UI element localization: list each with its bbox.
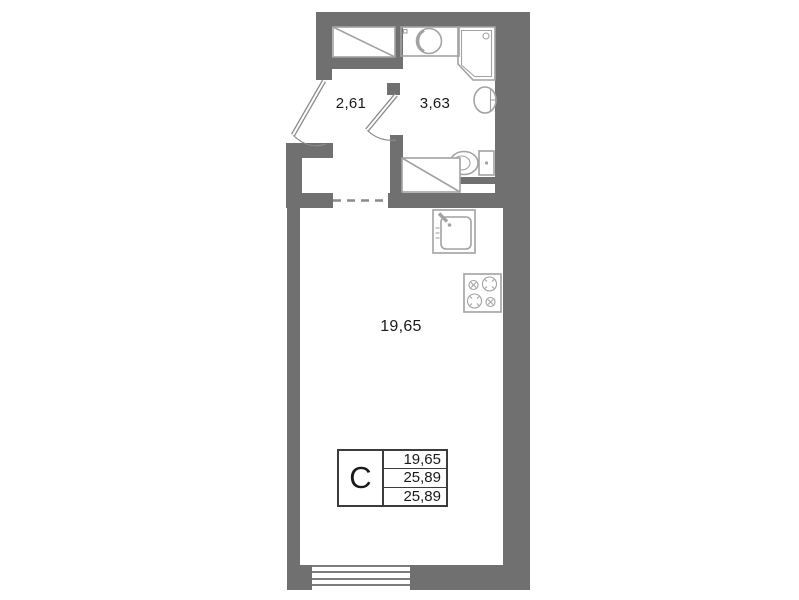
- kitchen-sink-icon: [433, 210, 475, 253]
- room-area-label-hallway: 2,61: [319, 95, 383, 112]
- legend-table: С 19,65 25,89 25,89: [337, 449, 448, 507]
- wall-basin-icon: [474, 87, 496, 113]
- room-area-label-bathroom: 3,63: [403, 95, 467, 112]
- room-area-label-living-room: 19,65: [362, 318, 440, 336]
- fixtures-layer: [0, 0, 799, 600]
- legend-apartment-type: С: [339, 451, 384, 505]
- legend-values: 19,65 25,89 25,89: [384, 451, 446, 505]
- floor-plan: 2,61 3,63 19,65 С 19,65 25,89 25,89: [0, 0, 799, 600]
- washbasin-counter-icon: [401, 27, 459, 56]
- legend-overall-area: 25,89: [384, 488, 446, 505]
- washing-machine-icon: [402, 158, 460, 192]
- legend-total-area: 25,89: [384, 469, 446, 487]
- legend-living-area: 19,65: [384, 451, 446, 469]
- entry-door-icon: [293, 81, 326, 146]
- wardrobe-icon: [333, 27, 395, 57]
- stove-icon: [464, 274, 501, 312]
- shower-cabin-icon: [458, 27, 495, 80]
